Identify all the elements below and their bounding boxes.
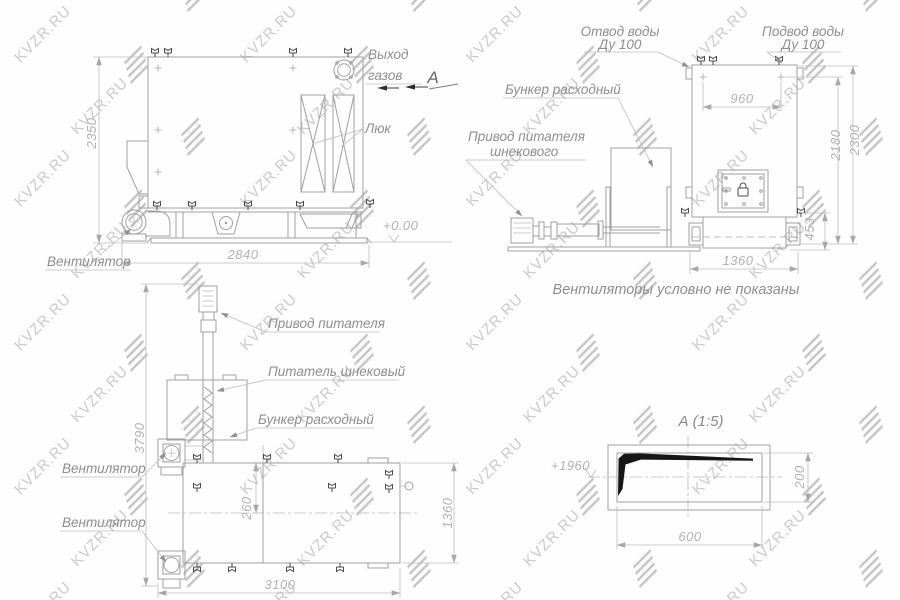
feeder-drive-text-1: Привод питателя	[468, 129, 585, 144]
label-hatch: Люк	[312, 121, 391, 147]
tank-base	[682, 209, 805, 249]
top-valves	[152, 49, 352, 58]
boiler-plan	[168, 445, 420, 568]
label-fan-plan-top: Вентилятор	[60, 453, 166, 477]
dim-detail-height: 200	[764, 453, 813, 502]
fuel-hopper	[127, 141, 148, 208]
level-text: +0.00	[383, 218, 419, 233]
feeder-drive-text-2: шнекового	[490, 144, 559, 159]
inspection-door	[718, 170, 768, 212]
level-mark-front: +0.00	[366, 218, 452, 242]
label-fan-front: Вентилятор	[45, 229, 131, 270]
hopper-plan	[167, 375, 247, 440]
hopper-plan-text: Бункер расходный	[258, 412, 374, 427]
technical-drawing: 2350 2840 Выход газов А	[0, 0, 900, 600]
label-gas-outlet: Выход газов	[366, 47, 422, 84]
fan-text: Вентилятор	[47, 254, 131, 269]
feeder-drive-plan-text: Привод питателя	[268, 316, 385, 331]
feed-hopper-side	[606, 148, 671, 247]
dim-plan-width: 3100	[158, 568, 400, 598]
label-fan-plan-bottom: Вентилятор	[60, 515, 166, 562]
hopper-side-text: Бункер расходный	[505, 82, 621, 97]
lock-icon	[738, 183, 748, 196]
dim-960: 960	[730, 91, 753, 106]
detail-view-a: А (1:5) +1960 200 600	[551, 413, 813, 549]
dim-2350: 2350	[84, 117, 99, 149]
level-1960-text: +1960	[551, 458, 590, 473]
detail-title: А (1:5)	[677, 413, 723, 430]
label-water-inlet: Подвод воды Ду 100	[762, 24, 844, 63]
label-feeder-drive-side: Привод питателя шнекового	[466, 129, 586, 216]
dim-2180: 2180	[828, 129, 843, 161]
plan-view: 3790 260 1360 3100 Привод питателя	[60, 284, 459, 598]
fan-plan-bottom-text: Вентилятор	[62, 515, 146, 530]
dim-200: 200	[792, 465, 807, 489]
water-tank	[686, 65, 803, 217]
dim-1360-plan: 1360	[440, 497, 455, 528]
dim-260: 260	[239, 496, 254, 520]
side-view: 960 2180 2300 453 1360	[466, 24, 862, 298]
dim-1360-side: 1360	[723, 253, 754, 268]
base-frame	[147, 212, 371, 243]
dim-3100: 3100	[265, 577, 296, 592]
water-outlet-text-2: Ду 100	[597, 37, 642, 52]
feeder-drive-plan	[199, 286, 217, 332]
dim-plan-offset: 260	[239, 463, 256, 521]
dim-plan-height: 3790	[132, 284, 198, 586]
section-letter: А	[426, 68, 438, 87]
dim-detail-width: 600	[617, 506, 762, 549]
dim-front-width: 2840	[122, 242, 369, 268]
dim-600: 600	[678, 529, 701, 544]
weld-seam	[618, 453, 753, 496]
dim-2840: 2840	[227, 247, 259, 262]
dim-2300: 2300	[847, 124, 862, 156]
gas-outlet-text-1: Выход	[368, 47, 409, 62]
hatch-panels	[301, 95, 354, 192]
dim-3790: 3790	[132, 422, 147, 453]
label-hopper-plan: Бункер расходный	[230, 412, 374, 437]
dim-453: 453	[802, 217, 817, 240]
screw-feeder-plan	[203, 332, 213, 463]
boiler-body	[148, 57, 363, 208]
tank-top-valves	[698, 57, 783, 66]
dim-tank-top-width: 960	[703, 82, 781, 111]
water-inlet-text-2: Ду 100	[780, 37, 825, 52]
gas-outlet-flange	[334, 60, 354, 80]
label-screw-feeder-plan: Питатель шнековый	[217, 364, 406, 391]
dim-base-height: 453	[790, 213, 830, 250]
dim-base-width: 1360	[690, 252, 798, 274]
screw-feeder-text: Питатель шнековый	[268, 364, 406, 379]
fan-plan-top-text: Вентилятор	[62, 461, 146, 476]
side-view-note: Вентиляторы условно не показаны	[553, 282, 800, 298]
drawing-sheet: KVZR.RUKVZR.RUKVZR.RUKVZR.RUKVZR.RUKVZR.…	[0, 0, 900, 600]
fan	[122, 210, 170, 241]
label-water-outlet: Отвод воды Ду 100	[581, 24, 689, 67]
front-view: 2350 2840 Выход газов А	[45, 47, 458, 270]
fan-plan-top	[158, 439, 203, 475]
label-feeder-drive-plan: Привод питателя	[221, 313, 385, 332]
level-mark-detail: +1960	[551, 458, 596, 478]
gas-outlet-text-2: газов	[368, 68, 402, 83]
hatch-text: Люк	[364, 121, 391, 136]
